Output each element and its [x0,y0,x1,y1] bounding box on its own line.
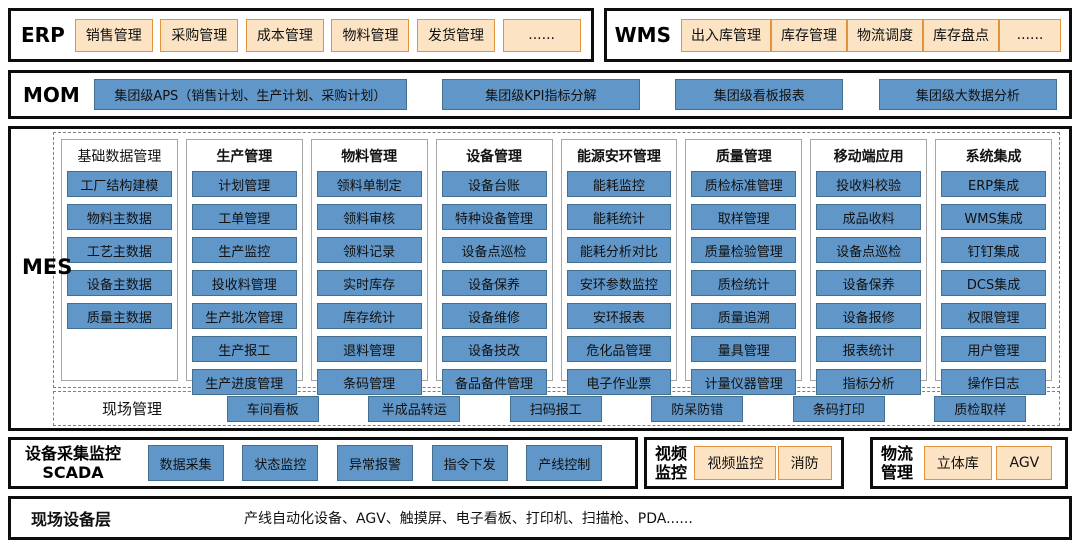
logistics-item-list: 立体库AGV [919,446,1057,480]
scada-label-line2: SCADA [42,463,103,482]
logistics-label-line2: 管理 [881,463,913,482]
mes-module-chip: 工艺主数据 [67,237,172,263]
mes-site-management-row: 现场管理 车间看板半成品转运扫码报工防呆防错条码打印质检取样 [53,391,1060,426]
mes-module-chip: 能耗分析对比 [567,237,672,263]
erp-item-list: 销售管理采购管理成本管理物料管理发货管理...... [75,19,581,52]
mes-module-chip: 条码管理 [317,369,422,395]
mes-module-chip: 电子作业票 [567,369,672,395]
mes-layer: MES 基础数据管理 工厂结构建模物料主数据工艺主数据设备主数据质量主数据 生产… [8,126,1072,431]
mes-module-chip: 安环参数监控 [567,270,672,296]
video-label-line2: 监控 [655,463,687,482]
wms-label: WMS [615,23,671,47]
mes-module-chip: 量具管理 [691,336,796,362]
wms-layer: WMS 出入库管理库存管理物流调度库存盘点...... [604,8,1072,62]
mes-columns-panel: 基础数据管理 工厂结构建模物料主数据工艺主数据设备主数据质量主数据 生产管理 计… [53,132,1060,388]
mes-module-chip: 报表统计 [816,336,921,362]
mes-column-header: 移动端应用 [816,143,921,171]
scada-row: 设备采集监控 SCADA 数据采集状态监控异常报警指令下发产线控制 视频 监控 … [8,437,1072,489]
erp-module-chip: ...... [503,19,581,52]
mom-module-chip: 集团级APS（销售计划、生产计划、采购计划） [94,79,407,110]
erp-module-chip: 物料管理 [331,19,409,52]
mes-module-chip: 设备保养 [442,270,547,296]
field-device-text: 产线自动化设备、AGV、触摸屏、电子看板、打印机、扫描枪、PDA...... [244,508,693,528]
mes-column-production: 生产管理 计划管理工单管理生产监控投收料管理生产批次管理生产报工生产进度管理 [186,139,303,381]
mes-column-material: 物料管理 领料单制定领料审核领料记录实时库存库存统计退料管理条码管理 [311,139,428,381]
mom-label: MOM [23,83,80,107]
site-module-chip: 半成品转运 [368,396,460,422]
video-label-line1: 视频 [655,444,687,463]
video-item-list: 视频监控消防 [693,446,833,480]
mes-module-chip: 权限管理 [941,303,1046,329]
mes-module-chip: 计量仪器管理 [691,369,796,395]
mes-column-header: 系统集成 [941,143,1046,171]
mes-column-items: 工厂结构建模物料主数据工艺主数据设备主数据质量主数据 [67,171,172,329]
scada-module-chip: 数据采集 [148,445,224,481]
mes-module-chip: 设备技改 [442,336,547,362]
mes-architecture-diagram: ERP 销售管理采购管理成本管理物料管理发货管理...... WMS 出入库管理… [0,0,1080,547]
mes-module-chip: 生产监控 [192,237,297,263]
mes-label: MES [22,255,72,279]
mes-column-basic-data: 基础数据管理 工厂结构建模物料主数据工艺主数据设备主数据质量主数据 [61,139,178,381]
mes-module-chip: 投收料校验 [816,171,921,197]
mes-module-chip: 钉钉集成 [941,237,1046,263]
mes-column-quality: 质量管理 质检标准管理取样管理质量检验管理质检统计质量追溯量具管理计量仪器管理 [685,139,802,381]
mes-module-chip: 能耗统计 [567,204,672,230]
scada-layer: 设备采集监控 SCADA 数据采集状态监控异常报警指令下发产线控制 [8,437,638,489]
mes-column-header: 能源安环管理 [567,143,672,171]
site-module-chip: 扫码报工 [510,396,602,422]
mes-module-chip: 安环报表 [567,303,672,329]
mes-module-chip: 指标分析 [816,369,921,395]
scada-module-chip: 异常报警 [337,445,413,481]
mom-layer: MOM 集团级APS（销售计划、生产计划、采购计划）集团级KPI指标分解集团级看… [8,70,1072,119]
mes-module-chip: 领料记录 [317,237,422,263]
mes-module-chip: ERP集成 [941,171,1046,197]
mes-module-chip: 质量检验管理 [691,237,796,263]
wms-item-list: 出入库管理库存管理物流调度库存盘点...... [681,19,1061,52]
site-item-list: 车间看板半成品转运扫码报工防呆防错条码打印质检取样 [202,396,1051,422]
mes-module-chip: 取样管理 [691,204,796,230]
field-device-label: 现场设备层 [31,506,111,530]
mom-module-chip: 集团级KPI指标分解 [442,79,639,110]
mes-module-chip: 成品收料 [816,204,921,230]
mes-module-chip: 设备主数据 [67,270,172,296]
erp-label: ERP [21,23,65,47]
mes-module-chip: 质检统计 [691,270,796,296]
mes-column-items: ERP集成WMS集成钉钉集成DCS集成权限管理用户管理操作日志 [941,171,1046,395]
mes-module-chip: 危化品管理 [567,336,672,362]
mes-module-chip: 用户管理 [941,336,1046,362]
mes-module-chip: 设备点巡检 [442,237,547,263]
mes-module-chip: 生产进度管理 [192,369,297,395]
erp-module-chip: 成本管理 [246,19,324,52]
mes-column-header: 基础数据管理 [67,143,172,171]
mom-module-chip: 集团级大数据分析 [879,79,1057,110]
mes-module-chip: 备品备件管理 [442,369,547,395]
mes-column-items: 领料单制定领料审核领料记录实时库存库存统计退料管理条码管理 [317,171,422,395]
video-module-chip: 视频监控 [694,446,776,480]
mes-module-chip: 设备台账 [442,171,547,197]
mes-column-items: 计划管理工单管理生产监控投收料管理生产批次管理生产报工生产进度管理 [192,171,297,395]
mes-column-header: 设备管理 [442,143,547,171]
mes-column-header: 质量管理 [691,143,796,171]
mes-module-chip: 设备点巡检 [816,237,921,263]
mes-module-chip: 物料主数据 [67,204,172,230]
mom-module-chip: 集团级看板报表 [675,79,844,110]
logistics-layer: 物流 管理 立体库AGV [870,437,1068,489]
field-device-layer: 现场设备层 产线自动化设备、AGV、触摸屏、电子看板、打印机、扫描枪、PDA..… [8,496,1072,540]
mes-module-chip: 质量追溯 [691,303,796,329]
scada-label-line1: 设备采集监控 [25,444,121,463]
erp-module-chip: 发货管理 [417,19,495,52]
mes-column-items: 设备台账特种设备管理设备点巡检设备保养设备维修设备技改备品备件管理 [442,171,547,395]
logistics-module-chip: 立体库 [924,446,992,480]
wms-module-chip: ...... [999,19,1061,52]
site-module-chip: 质检取样 [934,396,1026,422]
mes-module-chip: 库存统计 [317,303,422,329]
mes-module-chip: 工单管理 [192,204,297,230]
mom-item-list: 集团级APS（销售计划、生产计划、采购计划）集团级KPI指标分解集团级看板报表集… [94,79,1057,110]
mes-module-chip: 生产批次管理 [192,303,297,329]
mes-module-chip: WMS集成 [941,204,1046,230]
video-monitor-layer: 视频 监控 视频监控消防 [644,437,844,489]
wms-module-chip: 库存盘点 [923,19,999,52]
mes-column-items: 质检标准管理取样管理质量检验管理质检统计质量追溯量具管理计量仪器管理 [691,171,796,395]
logistics-label: 物流 管理 [881,444,913,482]
mes-column-header: 生产管理 [192,143,297,171]
scada-module-chip: 指令下发 [432,445,508,481]
mes-module-chip: 领料单制定 [317,171,422,197]
wms-module-chip: 出入库管理 [681,19,771,52]
site-module-chip: 防呆防错 [651,396,743,422]
site-module-chip: 车间看板 [227,396,319,422]
mes-column-items: 能耗监控能耗统计能耗分析对比安环参数监控安环报表危化品管理电子作业票 [567,171,672,395]
mes-module-chip: 工厂结构建模 [67,171,172,197]
mes-module-chip: 计划管理 [192,171,297,197]
mes-module-chip: DCS集成 [941,270,1046,296]
erp-module-chip: 销售管理 [75,19,153,52]
scada-label: 设备采集监控 SCADA [25,444,121,482]
mes-module-chip: 领料审核 [317,204,422,230]
mes-module-chip: 设备保养 [816,270,921,296]
wms-module-chip: 库存管理 [771,19,847,52]
mes-column-energy-ehs: 能源安环管理 能耗监控能耗统计能耗分析对比安环参数监控安环报表危化品管理电子作业… [561,139,678,381]
mes-module-chip: 操作日志 [941,369,1046,395]
mes-column-header: 物料管理 [317,143,422,171]
mes-column-equipment: 设备管理 设备台账特种设备管理设备点巡检设备保养设备维修设备技改备品备件管理 [436,139,553,381]
mes-module-chip: 质检标准管理 [691,171,796,197]
video-label: 视频 监控 [655,444,687,482]
scada-module-chip: 产线控制 [526,445,602,481]
scada-module-chip: 状态监控 [242,445,318,481]
mes-module-chip: 生产报工 [192,336,297,362]
mes-module-chip: 质量主数据 [67,303,172,329]
mes-column-items: 投收料校验成品收料设备点巡检设备保养设备报修报表统计指标分析 [816,171,921,395]
mes-module-chip: 特种设备管理 [442,204,547,230]
mes-module-chip: 设备报修 [816,303,921,329]
mes-module-chip: 能耗监控 [567,171,672,197]
logistics-module-chip: AGV [996,446,1052,480]
logistics-label-line1: 物流 [881,444,913,463]
erp-module-chip: 采购管理 [160,19,238,52]
mes-module-chip: 投收料管理 [192,270,297,296]
mes-module-chip: 实时库存 [317,270,422,296]
top-row: ERP 销售管理采购管理成本管理物料管理发货管理...... WMS 出入库管理… [8,8,1072,62]
mes-column-integration: 系统集成 ERP集成WMS集成钉钉集成DCS集成权限管理用户管理操作日志 [935,139,1052,381]
scada-item-list: 数据采集状态监控异常报警指令下发产线控制 [129,445,621,481]
site-module-chip: 条码打印 [793,396,885,422]
mes-column-mobile: 移动端应用 投收料校验成品收料设备点巡检设备保养设备报修报表统计指标分析 [810,139,927,381]
wms-module-chip: 物流调度 [847,19,923,52]
video-module-chip: 消防 [778,446,832,480]
site-management-label: 现场管理 [62,398,202,419]
mes-module-chip: 设备维修 [442,303,547,329]
erp-layer: ERP 销售管理采购管理成本管理物料管理发货管理...... [8,8,594,62]
mes-module-chip: 退料管理 [317,336,422,362]
